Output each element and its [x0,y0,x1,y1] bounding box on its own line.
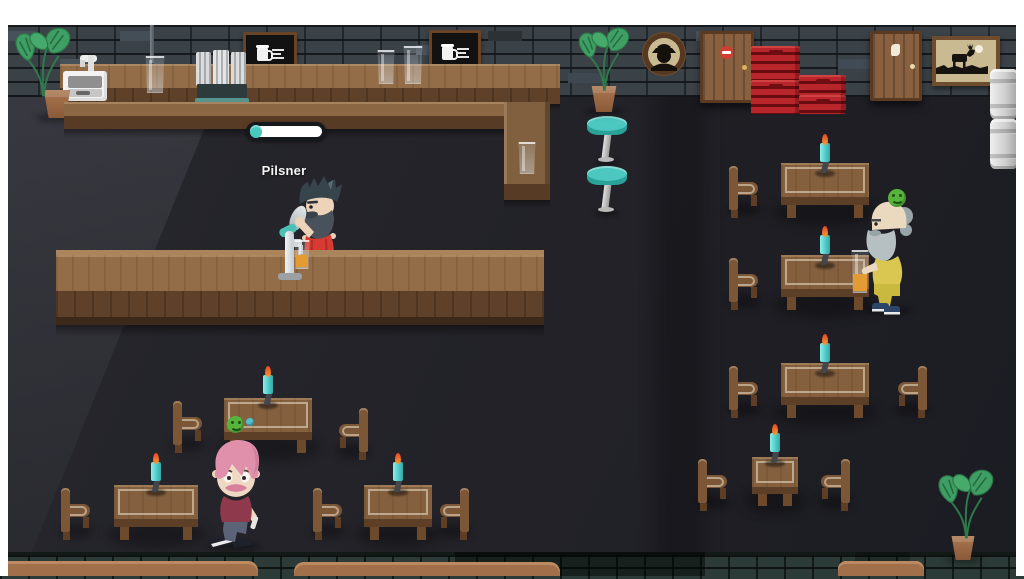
no-entry-sign-icon [720,46,733,59]
tap-column [285,231,294,277]
door-knob [910,64,915,69]
bar-counter-base [56,317,544,325]
back-door[interactable] [700,31,754,103]
restroom-sign-icon [891,44,900,56]
chair[interactable] [437,488,471,540]
walking-customer[interactable] [202,436,270,552]
beer-crate[interactable] [751,80,800,114]
monstera-plant [568,26,640,92]
candle [813,226,837,270]
bottom-table-edge[interactable] [0,561,258,576]
candle [144,453,168,497]
candle [813,334,837,378]
letterbox-right [1016,0,1024,576]
glass-stack[interactable] [194,46,250,108]
monstera-plant [928,468,1004,540]
beer-keg[interactable] [990,69,1018,119]
empty-glass[interactable] [403,46,423,84]
bar-counter-front [56,291,544,317]
bottom-table-edge[interactable] [294,562,560,576]
chair[interactable] [311,488,345,540]
chair[interactable] [336,408,370,460]
menu-text-lines [457,48,469,58]
chair[interactable] [895,366,929,418]
letterbox-left [0,0,8,576]
beer-crate[interactable] [799,95,846,114]
bottom-table-edge[interactable] [838,561,924,576]
tap-base [278,273,302,280]
pub-game-scene: Pilsner [0,0,1024,576]
letterbox-top [0,0,1024,25]
bar-return-front [504,184,550,200]
chair[interactable] [171,401,205,453]
monstera-plant [2,26,84,98]
chair[interactable] [696,459,730,511]
beer-keg[interactable] [990,119,1018,169]
bar-return-shadow [504,200,550,208]
teal-ball [246,418,254,426]
beer-crate[interactable] [799,75,846,95]
detective-portrait [640,31,688,77]
chair[interactable] [59,488,93,540]
candle [813,134,837,178]
bartender-hand [295,217,305,227]
bar-stool[interactable] [587,166,627,214]
chair[interactable] [727,366,761,418]
candle [386,453,410,497]
empty-glass[interactable] [377,50,395,84]
empty-glass[interactable] [518,142,536,174]
beer-mug-icon [442,47,453,60]
brew-item-label: Pilsner [232,163,336,178]
brew-progress-bar [246,122,326,141]
chair[interactable] [818,459,852,511]
happy-mood-icon [888,189,906,207]
candle [256,366,280,410]
restroom-door[interactable] [870,31,922,101]
bar-stool[interactable] [587,116,627,164]
menu-text-lines [272,49,284,59]
beer-mug-icon [257,48,268,61]
chair[interactable] [727,166,761,218]
progress-fill [250,125,262,138]
upper-bar-top [64,102,550,116]
back-counter-top [60,64,560,88]
empty-glass[interactable] [145,56,165,93]
progress-track [250,126,322,137]
happy-mood-icon [227,416,244,433]
pouring-glass [294,240,310,269]
bar-counter-shadow [56,325,544,337]
beer-crate[interactable] [751,46,800,80]
candle [763,424,787,468]
chair[interactable] [727,258,761,310]
door-knob [742,65,747,70]
